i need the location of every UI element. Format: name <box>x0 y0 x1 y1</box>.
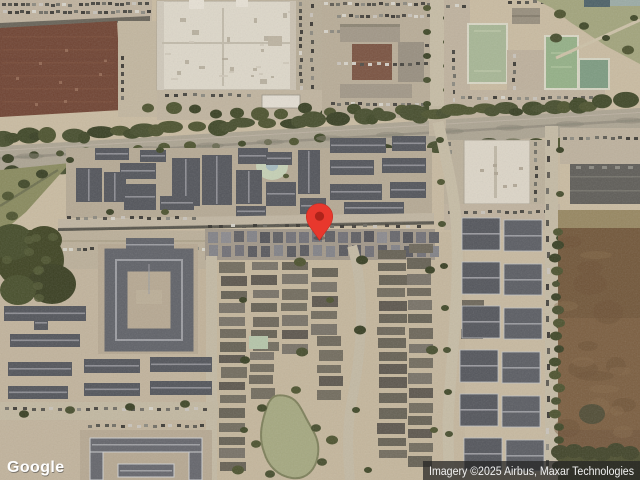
svg-text:Google: Google <box>7 459 65 476</box>
svg-text:Imagery ©2025 Airbus, Maxar Te: Imagery ©2025 Airbus, Maxar Technologies <box>429 464 634 478</box>
